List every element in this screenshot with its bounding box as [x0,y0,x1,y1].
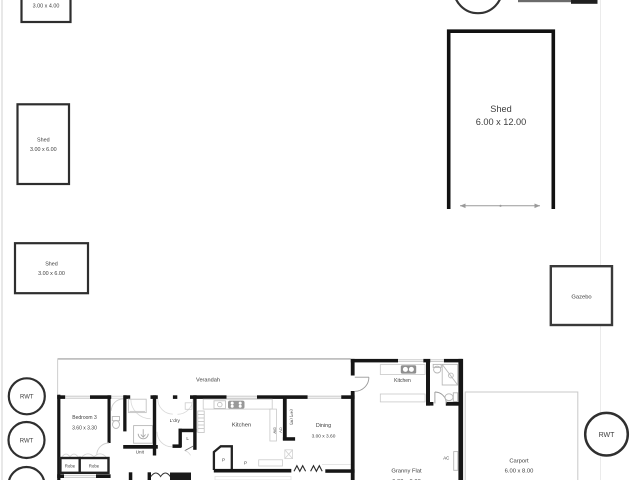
svg-text:Gazebo: Gazebo [571,295,591,301]
svg-text:Granny Flat: Granny Flat [391,469,422,475]
svg-text:6.00 x 8.00: 6.00 x 8.00 [505,469,534,475]
svg-text:RWT: RWT [599,432,616,439]
svg-text:Verandah: Verandah [196,378,220,384]
svg-text:3.60 x 3.30: 3.60 x 3.30 [72,425,97,431]
svg-text:Unit: Unit [136,450,145,455]
svg-text:DW: DW [273,428,277,435]
svg-text:RWT: RWT [20,395,34,401]
svg-text:Shed: Shed [45,262,58,268]
svg-text:Carport: Carport [509,459,529,465]
svg-text:Kitchen: Kitchen [232,423,251,429]
svg-text:Bedroom 3: Bedroom 3 [72,415,97,421]
svg-text:AC: AC [443,456,449,461]
svg-text:Robe: Robe [65,463,76,468]
svg-text:Dining: Dining [316,423,331,429]
svg-text:Shed: Shed [490,104,511,114]
svg-text:Kitchen: Kitchen [394,378,411,384]
svg-text:3.00 x 6.00: 3.00 x 6.00 [38,271,65,277]
svg-text:(HP) (Rf): (HP) (Rf) [290,409,295,425]
svg-text:6.00 x 12.00: 6.00 x 12.00 [476,117,527,127]
svg-text:P: P [244,461,247,466]
svg-text:Shed: Shed [37,138,50,144]
svg-text:3.00 x 4.00: 3.00 x 4.00 [33,4,60,10]
svg-text:3.00 x 6.00: 3.00 x 6.00 [30,147,57,153]
svg-text:Robe: Robe [89,463,100,468]
svg-text:P: P [222,458,225,463]
svg-text:OV: OV [279,427,284,433]
svg-text:3.00 x 3.60: 3.00 x 3.60 [312,434,336,440]
svg-text:RWT: RWT [20,438,34,444]
svg-text:L'dry: L'dry [170,418,181,424]
